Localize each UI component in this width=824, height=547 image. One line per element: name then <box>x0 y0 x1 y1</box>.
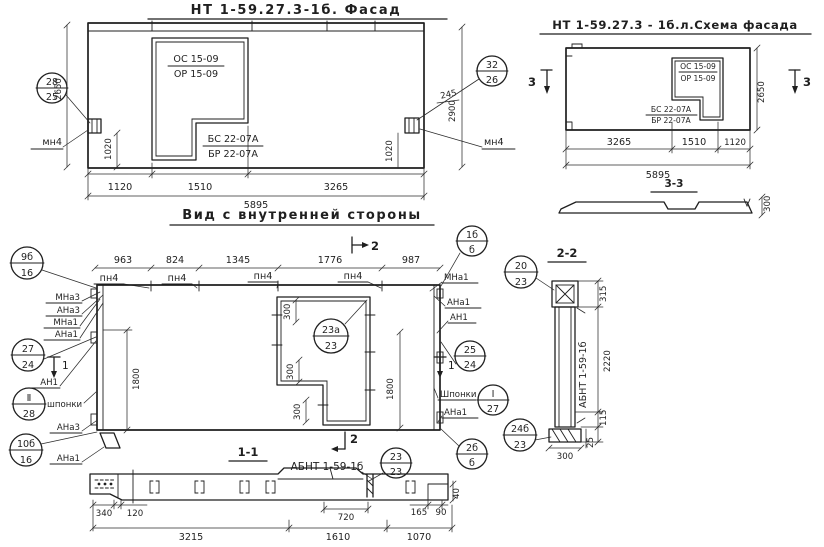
dim: 3265 <box>607 137 631 148</box>
facade-anchor-label-right: мн4 <box>484 137 504 148</box>
inner-title: Вид с внутренней стороны <box>182 208 422 223</box>
callout-top: 1б <box>466 230 478 241</box>
section-1-1: 1-1 АБНТ 1-59-1б 23 23 <box>90 445 462 543</box>
facade-dim-1020-left: 1020 <box>104 138 114 160</box>
dim: 1800 <box>132 368 142 390</box>
dim: 25 <box>586 437 596 448</box>
facade-title: НТ 1-59.27.3-1б. Фасад <box>191 3 402 18</box>
mount-label: АНа1 <box>57 454 80 464</box>
facade-window-mark-top: ОС 15-09 <box>173 54 218 65</box>
cut-label: 3 <box>528 75 536 89</box>
blueprint-sheet: НТ 1-59.27.3-1б. Фасад ОС 15-09 ОР 15-09… <box>0 0 824 547</box>
facade-panel-mark-top: БС 22-07А <box>208 134 259 145</box>
facade-dim-2900: 2900 <box>448 100 458 122</box>
dim: 115 <box>599 410 609 426</box>
callout-top: 24б <box>511 424 529 435</box>
dim: 1510 <box>188 182 212 193</box>
scheme-cut-marker-left: 3 <box>528 70 552 94</box>
section-1-1-title: 1-1 <box>238 445 259 459</box>
scheme-window-mark-top: ОС 15-09 <box>680 62 716 71</box>
section-3-3-thickness: 300 <box>763 196 773 212</box>
inner-dim-1800-right: 1800 <box>386 329 403 431</box>
beam-label: АБНТ 1-59-1б <box>291 461 364 473</box>
inner-cut2-bottom: 2 <box>331 432 358 452</box>
callout-bottom: 23 <box>325 341 337 352</box>
scheme-cut-marker-right: 3 <box>789 70 811 94</box>
dim: 720 <box>338 513 354 523</box>
section-2-2: 2-2 АБНТ 1-59-1б 315 2220 115 25 <box>546 246 613 462</box>
callout-top: Ⅰ <box>492 389 495 400</box>
scheme-window-mark-bottom: ОР 15-09 <box>680 74 715 83</box>
facade-callout-right: 32 26 <box>417 56 508 120</box>
dim: 300 <box>293 404 303 420</box>
inner-view: Вид с внутренней стороны 963 824 1345 17… <box>9 208 554 469</box>
scheme-dim-2650: 2650 <box>757 81 767 103</box>
dim: 300 <box>286 364 296 380</box>
callout-bottom: 28 <box>23 409 35 420</box>
mount-label: МНа3 <box>55 293 80 303</box>
callout-bottom: 23 <box>515 277 527 288</box>
dim: 1800 <box>386 378 396 400</box>
dim: 824 <box>166 255 184 266</box>
facade-view: НТ 1-59.27.3-1б. Фасад ОС 15-09 ОР 15-09… <box>31 3 515 211</box>
inner-panel-outline <box>97 285 440 430</box>
keys-label: шпонки <box>47 400 82 410</box>
dim: 165 <box>411 508 427 518</box>
callout-bottom: б <box>469 458 475 469</box>
cut-label: 1 <box>62 360 69 372</box>
section-2-2-bottom-block <box>549 429 581 442</box>
dim: 1070 <box>407 532 431 543</box>
dim: 963 <box>114 255 132 266</box>
facade-window-mark-bottom: ОР 15-09 <box>174 69 218 80</box>
inner-dim-300-bottom: 300 <box>293 397 309 425</box>
callout-top: 23 <box>390 452 402 463</box>
inner-corner-connector <box>100 433 120 448</box>
mount-label: АНа1 <box>447 298 470 308</box>
hinge-label: пн4 <box>254 271 273 282</box>
inner-cut1-left: 1 <box>48 357 69 378</box>
dim: 300 <box>283 304 293 320</box>
mount-label: АНа3 <box>57 423 80 433</box>
dim: 2220 <box>603 350 613 372</box>
dim: 315 <box>599 286 609 302</box>
dim: 1610 <box>326 532 350 543</box>
inner-cut2-top: 2 <box>352 237 379 253</box>
hinge-label: пн4 <box>344 271 363 282</box>
mount-label: АН1 <box>40 378 58 388</box>
callout-bottom: 16 <box>21 268 33 279</box>
mount-label: АН1 <box>450 313 468 323</box>
callout-top: 27 <box>22 344 34 355</box>
callout-top: 9б <box>21 252 33 263</box>
dim: 340 <box>96 509 112 519</box>
mount-label: МНа1 <box>53 318 78 328</box>
scheme-title: НТ 1-59.27.3 - 1б.л.Схема фасада <box>552 18 798 32</box>
hinge-label: пн4 <box>100 273 119 284</box>
callout-bottom: 27 <box>487 404 499 415</box>
callout-bottom: 23 <box>514 440 526 451</box>
dim: 1120 <box>724 138 746 148</box>
section-2-2-title: 2-2 <box>557 246 578 260</box>
dim: 40 <box>452 488 462 499</box>
dim: 3215 <box>179 532 203 543</box>
mount-label: МНа1 <box>444 273 469 283</box>
section-1-1-callout: 23 23 <box>369 448 412 481</box>
section-2-2-column <box>555 307 575 427</box>
callout-top: 10б <box>17 439 35 450</box>
callout-top: 25 <box>464 345 476 356</box>
section-3-3-title: 3-3 <box>665 178 684 190</box>
cut-label: 2 <box>350 432 358 446</box>
dim: 987 <box>402 255 420 266</box>
inner-notch-left-top <box>91 289 97 298</box>
cut-label: 3 <box>803 75 811 89</box>
cut-label: 2 <box>371 239 379 253</box>
scheme-view: НТ 1-59.27.3 - 1б.л.Схема фасада ОС 15-0… <box>528 18 811 218</box>
dim: 1120 <box>108 182 132 193</box>
dim: 1510 <box>682 137 706 148</box>
scheme-panel-mark-top: БС 22-07А <box>651 105 692 114</box>
inner-top-dims: 963 824 1345 1776 987 <box>92 255 443 271</box>
inner-notch-left-bottom <box>91 414 97 425</box>
cut-label: 1 <box>448 360 455 372</box>
dim: 90 <box>436 508 447 518</box>
facade-anchor-label-left: мн4 <box>42 137 62 148</box>
dim: 300 <box>557 452 573 462</box>
mount-label: АНа1 <box>55 330 78 340</box>
mount-label: АНа3 <box>57 306 80 316</box>
callout-top: 32 <box>486 60 498 71</box>
inner-right-callouts: 1б б МНа1 АНа1 АН1 25 24 Шпонки Ⅰ 27 АНа… <box>430 226 554 469</box>
inner-dim-1800-left: 1800 <box>103 327 142 433</box>
dim: 3265 <box>324 182 348 193</box>
callout-bottom: 26 <box>486 75 498 86</box>
section-2-2-top-block <box>552 281 578 307</box>
callout-top: Ⅱ <box>27 393 32 404</box>
callout-bottom: 23 <box>390 467 402 478</box>
callout-top: 2б <box>466 443 478 454</box>
facade-dim-1020-right: 1020 <box>385 140 395 162</box>
inner-opening-callout: 23а 23 <box>313 300 367 353</box>
hinge-label: пн4 <box>168 273 187 284</box>
mount-label: АНа1 <box>444 408 467 418</box>
callout-bottom: 24 <box>22 360 34 371</box>
dim: 1345 <box>226 255 250 266</box>
scheme-section-3-3: 3-3 300 <box>559 178 773 218</box>
callout-bottom: б <box>469 245 475 256</box>
drawing-canvas: НТ 1-59.27.3-1б. Фасад ОС 15-09 ОР 15-09… <box>0 0 824 547</box>
facade-panel-mark-bottom: БР 22-07А <box>208 149 258 160</box>
section-3-3-profile <box>559 202 752 213</box>
facade-dim-2650: 2650 <box>54 78 64 100</box>
keys-label: Шпонки <box>440 390 476 400</box>
callout-top: 23а <box>322 325 340 336</box>
dim: 120 <box>127 509 143 519</box>
callout-bottom: 16 <box>20 455 32 466</box>
stirrup-marks <box>150 481 415 493</box>
callout-top: 20 <box>515 261 527 272</box>
scheme-panel-mark-bottom: БР 22-07А <box>651 116 691 125</box>
callout-bottom: 24 <box>464 360 476 371</box>
facade-anchor-left <box>88 119 101 133</box>
panel-label: АБНТ 1-59-1б <box>578 341 589 408</box>
dim: 1776 <box>318 255 342 266</box>
